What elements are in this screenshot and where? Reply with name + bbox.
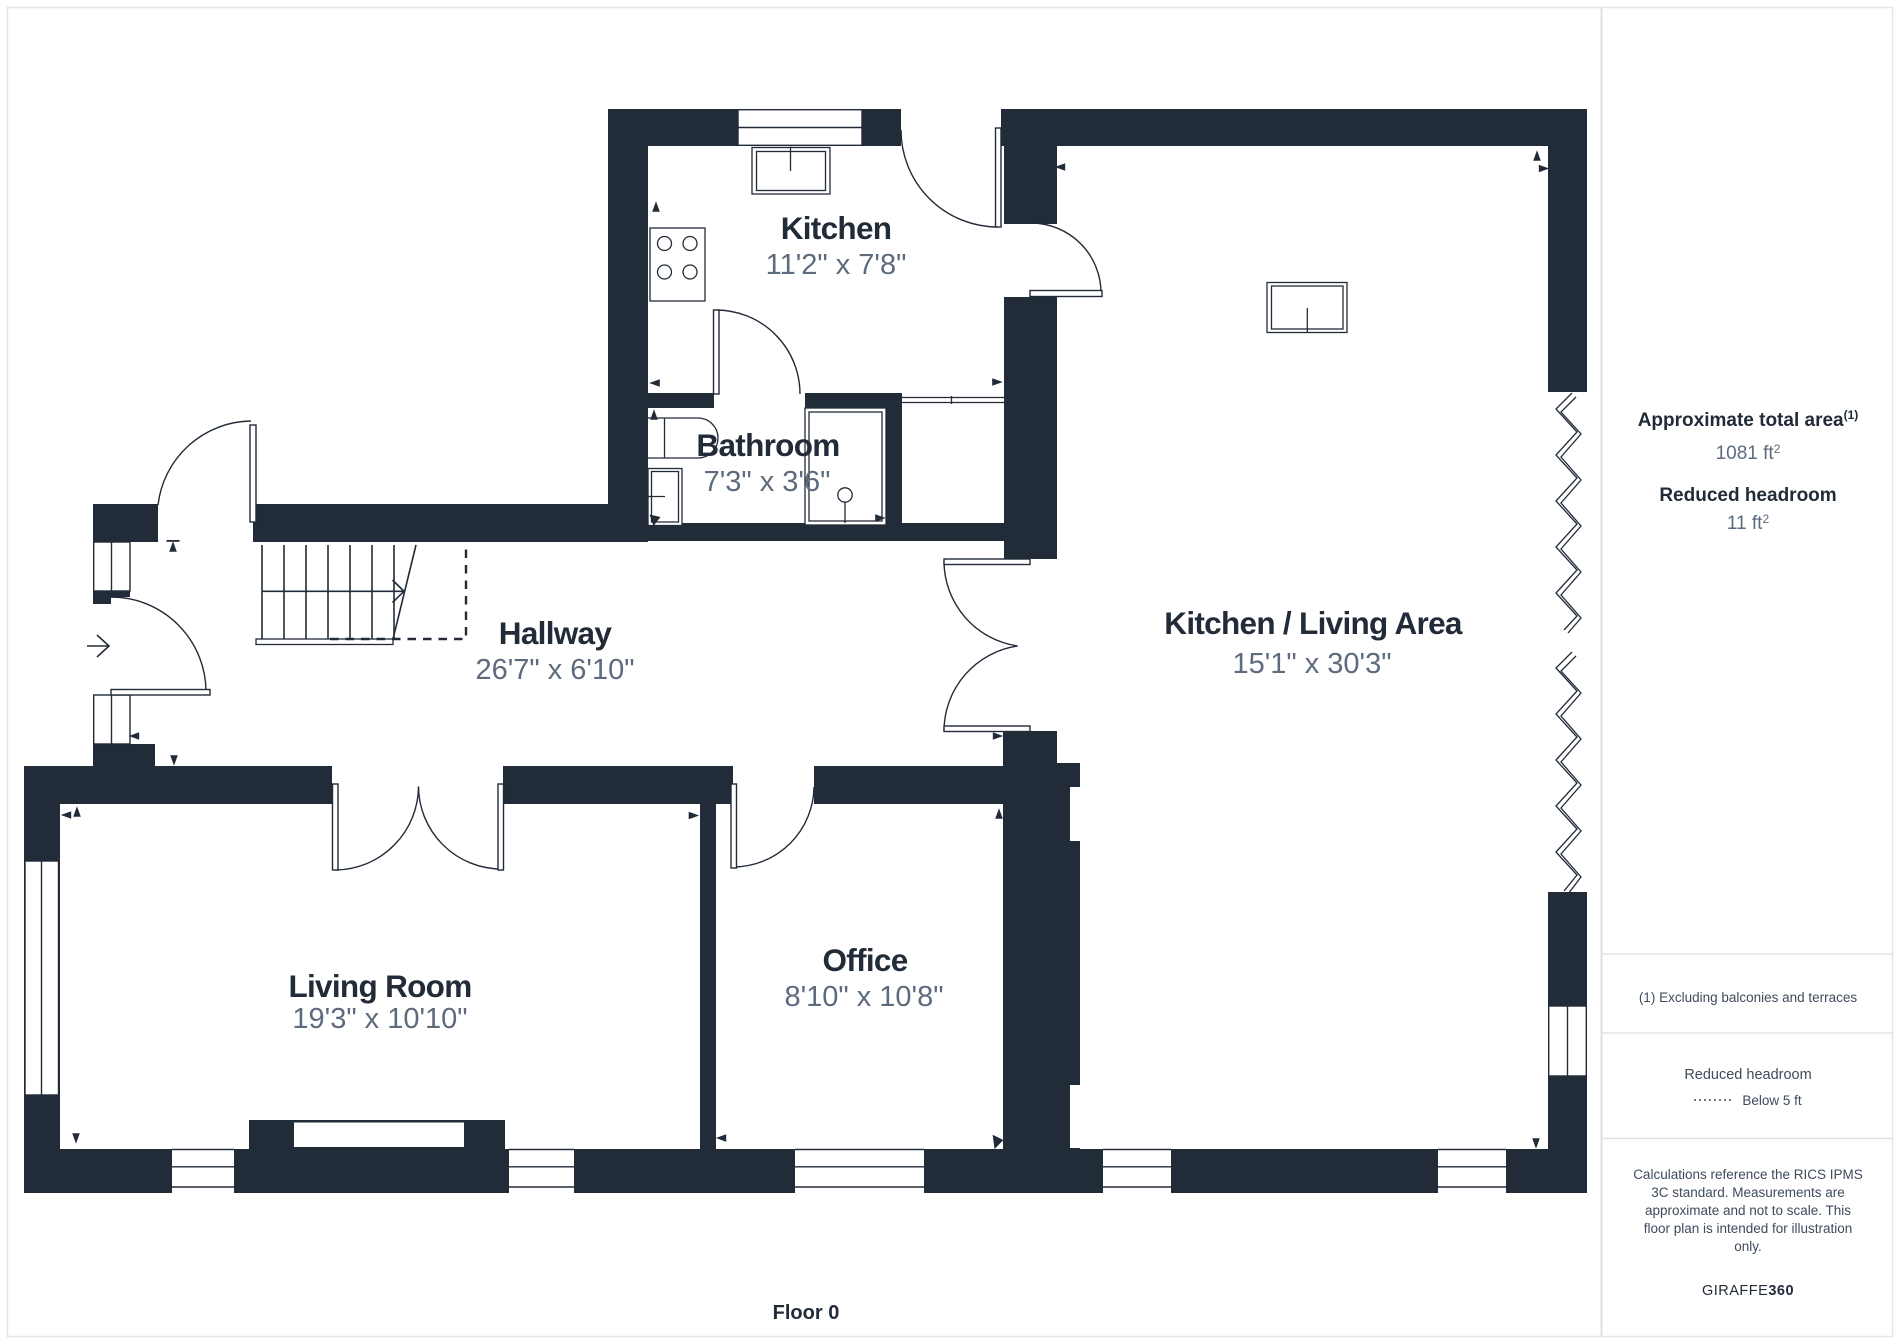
svg-text:Reduced headroom: Reduced headroom: [1659, 485, 1836, 506]
svg-text:approximate and not to scale.: approximate and not to scale. This: [1645, 1203, 1851, 1218]
svg-text:Bathroom: Bathroom: [696, 427, 839, 463]
svg-text:Below 5 ft: Below 5 ft: [1742, 1093, 1802, 1108]
svg-text:Kitchen / Living Area: Kitchen / Living Area: [1164, 605, 1463, 641]
svg-text:26'7" x 6'10": 26'7" x 6'10": [475, 654, 634, 686]
svg-text:Calculations reference the RIC: Calculations reference the RICS IPMS: [1633, 1167, 1863, 1182]
svg-text:8'10" x 10'8": 8'10" x 10'8": [784, 981, 943, 1013]
svg-text:19'3" x 10'10": 19'3" x 10'10": [292, 1003, 467, 1035]
svg-text:11'2" x 7'8": 11'2" x 7'8": [766, 249, 907, 281]
svg-text:Living Room: Living Room: [288, 968, 471, 1004]
svg-text:Reduced headroom: Reduced headroom: [1684, 1067, 1811, 1083]
svg-text:11 ft2: 11 ft2: [1727, 512, 1770, 534]
svg-text:Kitchen: Kitchen: [781, 210, 892, 246]
svg-text:15'1" x 30'3": 15'1" x 30'3": [1232, 648, 1391, 680]
svg-text:floor plan is intended for ill: floor plan is intended for illustration: [1644, 1221, 1853, 1236]
svg-text:Office: Office: [822, 942, 907, 978]
svg-text:(1) Excluding balconies and te: (1) Excluding balconies and terraces: [1639, 990, 1858, 1005]
svg-text:7'3" x 3'6": 7'3" x 3'6": [704, 466, 831, 498]
svg-text:Hallway: Hallway: [499, 615, 613, 651]
svg-text:Floor 0: Floor 0: [773, 1302, 840, 1324]
svg-text:Approximate total area(1): Approximate total area(1): [1638, 408, 1859, 431]
svg-text:only.: only.: [1734, 1239, 1762, 1254]
svg-text:1081 ft2: 1081 ft2: [1716, 442, 1781, 464]
svg-text:GIRAFFE360: GIRAFFE360: [1702, 1283, 1794, 1299]
svg-text:3C standard. Measurements are: 3C standard. Measurements are: [1651, 1185, 1845, 1200]
